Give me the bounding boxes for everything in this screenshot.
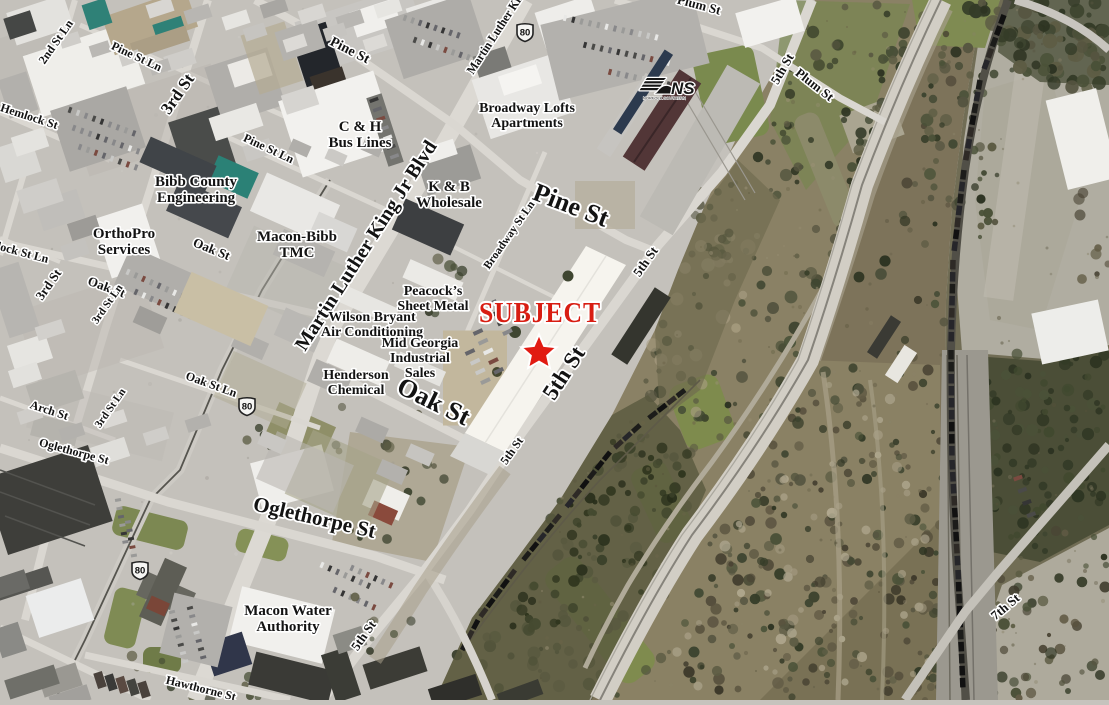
svg-text:Bus Lines: Bus Lines xyxy=(329,135,392,151)
svg-text:Authority: Authority xyxy=(256,619,320,635)
svg-text:Mid Georgia: Mid Georgia xyxy=(382,336,459,351)
svg-text:Macon-Bibb: Macon-Bibb xyxy=(257,229,337,245)
svg-text:Chemical: Chemical xyxy=(328,383,385,398)
svg-text:Peacock’s: Peacock’s xyxy=(404,284,463,299)
svg-text:TMC: TMC xyxy=(280,245,315,261)
svg-text:Broadway Lofts: Broadway Lofts xyxy=(479,101,575,116)
svg-text:Apartments: Apartments xyxy=(491,116,563,131)
svg-text:Services: Services xyxy=(98,242,151,258)
svg-text:80: 80 xyxy=(242,402,253,413)
svg-text:80: 80 xyxy=(520,28,531,39)
svg-text:Wilson Bryant: Wilson Bryant xyxy=(328,310,416,325)
svg-text:K & B: K & B xyxy=(428,179,470,195)
svg-text:Sales: Sales xyxy=(405,366,436,381)
svg-text:80: 80 xyxy=(135,566,146,577)
svg-text:Engineering: Engineering xyxy=(157,190,236,206)
svg-text:OrthoPro: OrthoPro xyxy=(93,226,155,242)
svg-text:Bibb County: Bibb County xyxy=(155,174,238,190)
svg-text:NORFOLK SOUTHERN: NORFOLK SOUTHERN xyxy=(643,96,686,101)
svg-text:Macon Water: Macon Water xyxy=(244,603,332,619)
svg-text:Henderson: Henderson xyxy=(323,368,389,383)
svg-text:Wholesale: Wholesale xyxy=(416,195,482,211)
svg-text:SUBJECT: SUBJECT xyxy=(479,297,601,329)
svg-text:C & H: C & H xyxy=(339,119,382,135)
svg-text:Industrial: Industrial xyxy=(390,351,450,366)
